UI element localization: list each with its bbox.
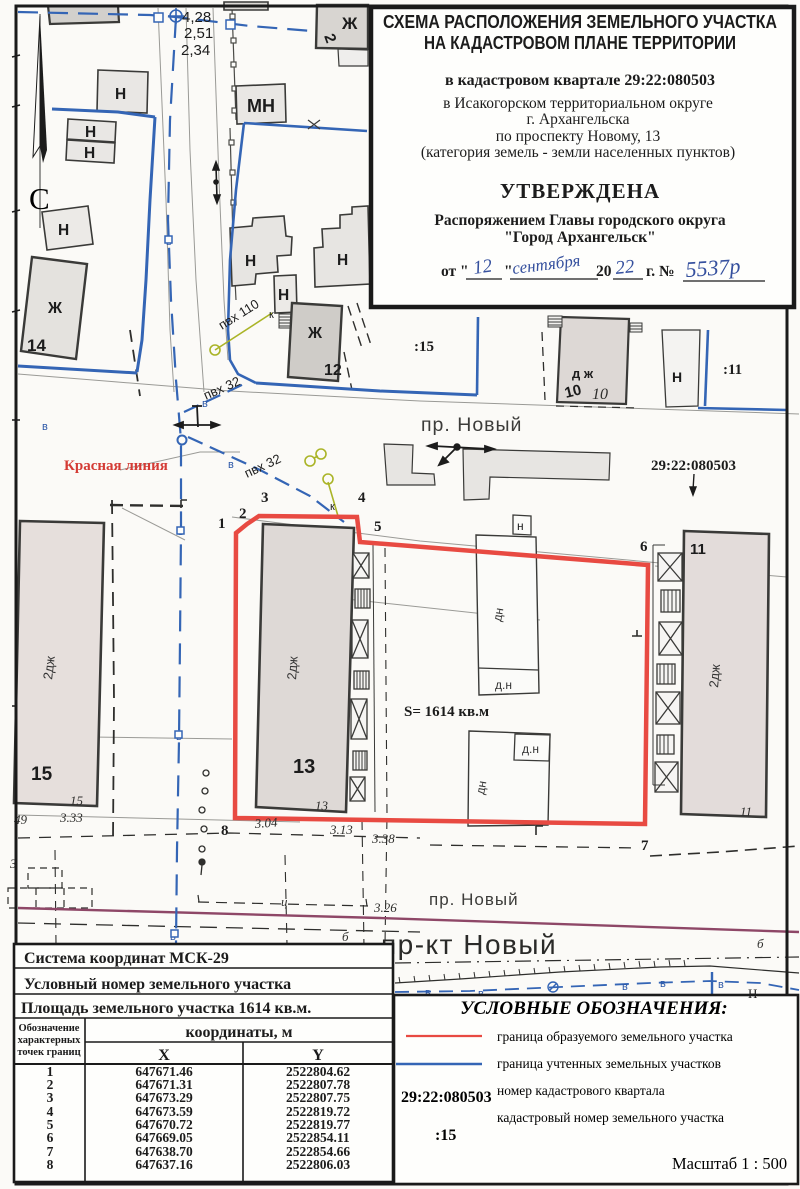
svg-text:пр. Новый: пр. Новый — [421, 414, 522, 436]
svg-text:2дж: 2дж — [706, 663, 723, 688]
svg-text:10: 10 — [592, 386, 608, 403]
svg-text:29:22:080503: 29:22:080503 — [651, 458, 736, 474]
svg-text:2522807.75: 2522807.75 — [286, 1090, 350, 1105]
svg-text:2522854.11: 2522854.11 — [286, 1130, 350, 1145]
svg-text:Система координат МСК-29: Система координат МСК-29 — [24, 950, 229, 967]
svg-text:647669.05: 647669.05 — [135, 1130, 193, 1145]
svg-text:29:22:080503: 29:22:080503 — [401, 1089, 492, 1106]
svg-text:15: 15 — [31, 764, 53, 785]
svg-text:(категория земель - земли насе: (категория земель - земли населенных пун… — [421, 144, 735, 161]
svg-text:Ж: Ж — [341, 14, 358, 33]
svg-text:номер кадастрового квартала: номер кадастрового квартала — [497, 1083, 665, 1098]
svg-text:4: 4 — [358, 490, 366, 506]
svg-text:2дж: 2дж — [40, 655, 58, 680]
svg-text:22: 22 — [614, 256, 636, 279]
svg-text:от ": от " — [441, 263, 469, 280]
svg-text:3: 3 — [261, 490, 269, 506]
svg-text:3.38: 3.38 — [371, 831, 395, 846]
svg-text:14: 14 — [27, 336, 46, 355]
svg-text:2дж: 2дж — [284, 655, 301, 680]
svg-text:5: 5 — [374, 519, 382, 535]
svg-text:8: 8 — [47, 1157, 54, 1172]
svg-text:3: 3 — [47, 1090, 54, 1105]
svg-text:д.н: д.н — [495, 678, 512, 692]
svg-text:Н: Н — [58, 222, 69, 239]
svg-text:3.13: 3.13 — [329, 822, 353, 837]
svg-text:УТВЕРЖДЕНА: УТВЕРЖДЕНА — [500, 179, 660, 203]
svg-text:11: 11 — [690, 541, 706, 558]
svg-text:г. Архангельска: г. Архангельска — [527, 111, 630, 128]
svg-text:2: 2 — [239, 506, 247, 522]
svg-text:в: в — [718, 979, 724, 991]
svg-text:13: 13 — [293, 756, 315, 778]
svg-text:граница образуемого земельного: граница образуемого земельного участка — [497, 1029, 733, 1044]
svg-text:в: в — [42, 421, 48, 433]
svg-text:пр. Новый: пр. Новый — [429, 890, 519, 909]
svg-text:5537р: 5537р — [685, 253, 742, 282]
svg-text:б: б — [757, 936, 764, 951]
svg-text:4,28: 4,28 — [182, 9, 211, 26]
svg-text:647673.29: 647673.29 — [135, 1090, 193, 1105]
svg-text:6: 6 — [47, 1130, 54, 1145]
svg-text:УСЛОВНЫЕ ОБОЗНАЧЕНИЯ:: УСЛОВНЫЕ ОБОЗНАЧЕНИЯ: — [460, 998, 727, 1019]
svg-text:2,51: 2,51 — [184, 25, 213, 42]
svg-text:Площадь земельного участка 16: Площадь земельного участка 1614 кв.м. — [21, 1000, 311, 1017]
svg-text:2,34: 2,34 — [181, 42, 210, 59]
svg-text:д ж: д ж — [572, 366, 594, 381]
svg-text:точек границ: точек границ — [17, 1047, 80, 1058]
svg-text:Н: Н — [278, 287, 289, 304]
svg-text:в: в — [228, 459, 234, 471]
svg-text:1: 1 — [218, 516, 226, 532]
svg-text:20: 20 — [596, 263, 612, 280]
svg-text:Н: Н — [672, 369, 682, 385]
svg-text:3.26: 3.26 — [373, 900, 397, 915]
svg-text:кадастровый номер земельного у: кадастровый номер земельного участка — [497, 1110, 724, 1125]
svg-text:по проспекту Новому, 13: по проспекту Новому, 13 — [496, 128, 661, 145]
svg-text:НА КАДАСТРОВОМ ПЛАНЕ ТЕРРИТОРИ: НА КАДАСТРОВОМ ПЛАНЕ ТЕРРИТОРИИ — [424, 33, 736, 53]
svg-text:н: н — [517, 519, 524, 533]
svg-text:к: к — [330, 501, 335, 513]
svg-text:12: 12 — [324, 362, 342, 379]
svg-text:3.04: 3.04 — [253, 814, 278, 831]
svg-text:МН: МН — [247, 96, 275, 116]
svg-text:в кадастровом квартале 29:22:0: в кадастровом квартале 29:22:080503 — [445, 72, 715, 89]
svg-text:Н: Н — [245, 253, 256, 270]
svg-text:дн: дн — [473, 780, 489, 796]
svg-text:граница учтенных земельных уча: граница учтенных земельных участков — [497, 1056, 721, 1071]
svg-text::15: :15 — [435, 1127, 456, 1144]
svg-text:ц: ц — [281, 894, 288, 909]
svg-text:Ж: Ж — [47, 300, 63, 317]
svg-text:дн: дн — [490, 607, 506, 623]
svg-text:Y: Y — [312, 1047, 324, 1064]
svg-text:в Исакогорском территориально: в Исакогорском территориальном округе — [443, 95, 713, 112]
svg-text:пр-кт Новый: пр-кт Новый — [381, 929, 557, 960]
svg-text:15: 15 — [70, 793, 84, 808]
svg-text:г. №: г. № — [646, 263, 675, 280]
svg-text:13: 13 — [315, 798, 329, 813]
svg-text:X: X — [158, 1047, 170, 1064]
svg-text:Масштаб 1 : 500: Масштаб 1 : 500 — [672, 1154, 787, 1173]
svg-text:д.н: д.н — [522, 742, 539, 756]
svg-text:координаты, м: координаты, м — [185, 1024, 292, 1041]
svg-text:б: б — [342, 929, 349, 944]
svg-text:12: 12 — [472, 255, 494, 279]
svg-text:Ж: Ж — [307, 325, 323, 342]
svg-text:3.33: 3.33 — [59, 810, 83, 825]
svg-text:6: 6 — [640, 539, 648, 555]
svg-text:Распоряжением Главы городского: Распоряжением Главы городского округа — [434, 212, 725, 229]
svg-text:Н: Н — [748, 986, 757, 1001]
svg-text:характерных: характерных — [18, 1035, 81, 1046]
svg-text::11: :11 — [723, 362, 742, 378]
svg-text:Н: Н — [85, 124, 96, 141]
svg-text:Обозначение: Обозначение — [19, 1023, 80, 1034]
svg-text:7: 7 — [641, 838, 649, 854]
svg-text:СХЕМА РАСПОЛОЖЕНИЯ ЗЕМЕЛЬНОГО: СХЕМА РАСПОЛОЖЕНИЯ ЗЕМЕЛЬНОГО УЧАСТКА — [383, 12, 777, 32]
svg-text:2522806.03: 2522806.03 — [286, 1157, 350, 1172]
svg-text:647637.16: 647637.16 — [135, 1157, 193, 1172]
svg-text:"Город Архангельск": "Город Архангельск" — [504, 229, 656, 246]
svg-text:в: в — [660, 978, 666, 990]
svg-text:в: в — [622, 981, 628, 993]
svg-text:Красная линия: Красная линия — [64, 458, 168, 474]
svg-text:Н: Н — [115, 86, 126, 103]
svg-text:Н: Н — [84, 145, 95, 162]
svg-text:S= 1614 кв.м: S= 1614 кв.м — [404, 704, 489, 720]
svg-text:Н: Н — [337, 252, 348, 269]
svg-text:С: С — [29, 181, 50, 216]
svg-text:11: 11 — [740, 804, 752, 819]
svg-text::15: :15 — [414, 339, 434, 355]
svg-text:к: к — [269, 309, 274, 321]
svg-text:8: 8 — [221, 823, 229, 839]
svg-text:Условный номер земельного учас: Условный номер земельного участка — [24, 976, 291, 993]
